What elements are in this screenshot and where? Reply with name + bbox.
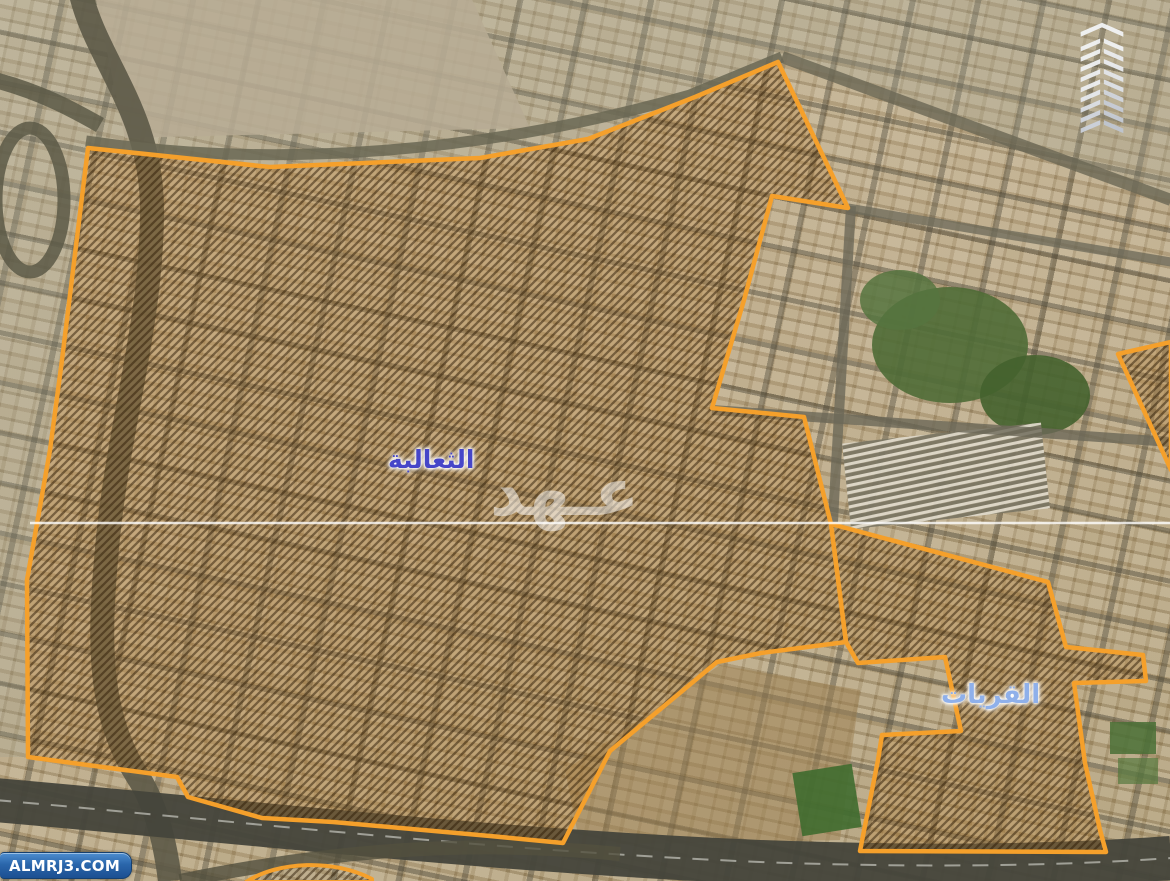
boundary-fragment-northeast <box>1118 342 1170 470</box>
map-overlay-svg <box>0 0 1170 881</box>
tower-logo-icon <box>1076 20 1128 135</box>
source-badge-text: ALMRJ3.COM <box>9 857 120 875</box>
watermark-text: عـهد <box>452 460 677 526</box>
vacant-lot <box>95 0 530 138</box>
sports-court <box>1110 722 1156 754</box>
park-green <box>980 355 1090 435</box>
upper-east-road <box>848 208 1170 262</box>
map-canvas: الثعالبة القريات عـهد ALMRJ3.COM <box>0 0 1170 881</box>
park-green <box>860 270 940 330</box>
source-badge: ALMRJ3.COM <box>0 852 132 879</box>
sports-court <box>1118 758 1158 784</box>
football-pitch <box>792 764 861 837</box>
container-yard <box>842 423 1050 529</box>
district-label-quraiyat: القريات <box>941 682 1040 708</box>
